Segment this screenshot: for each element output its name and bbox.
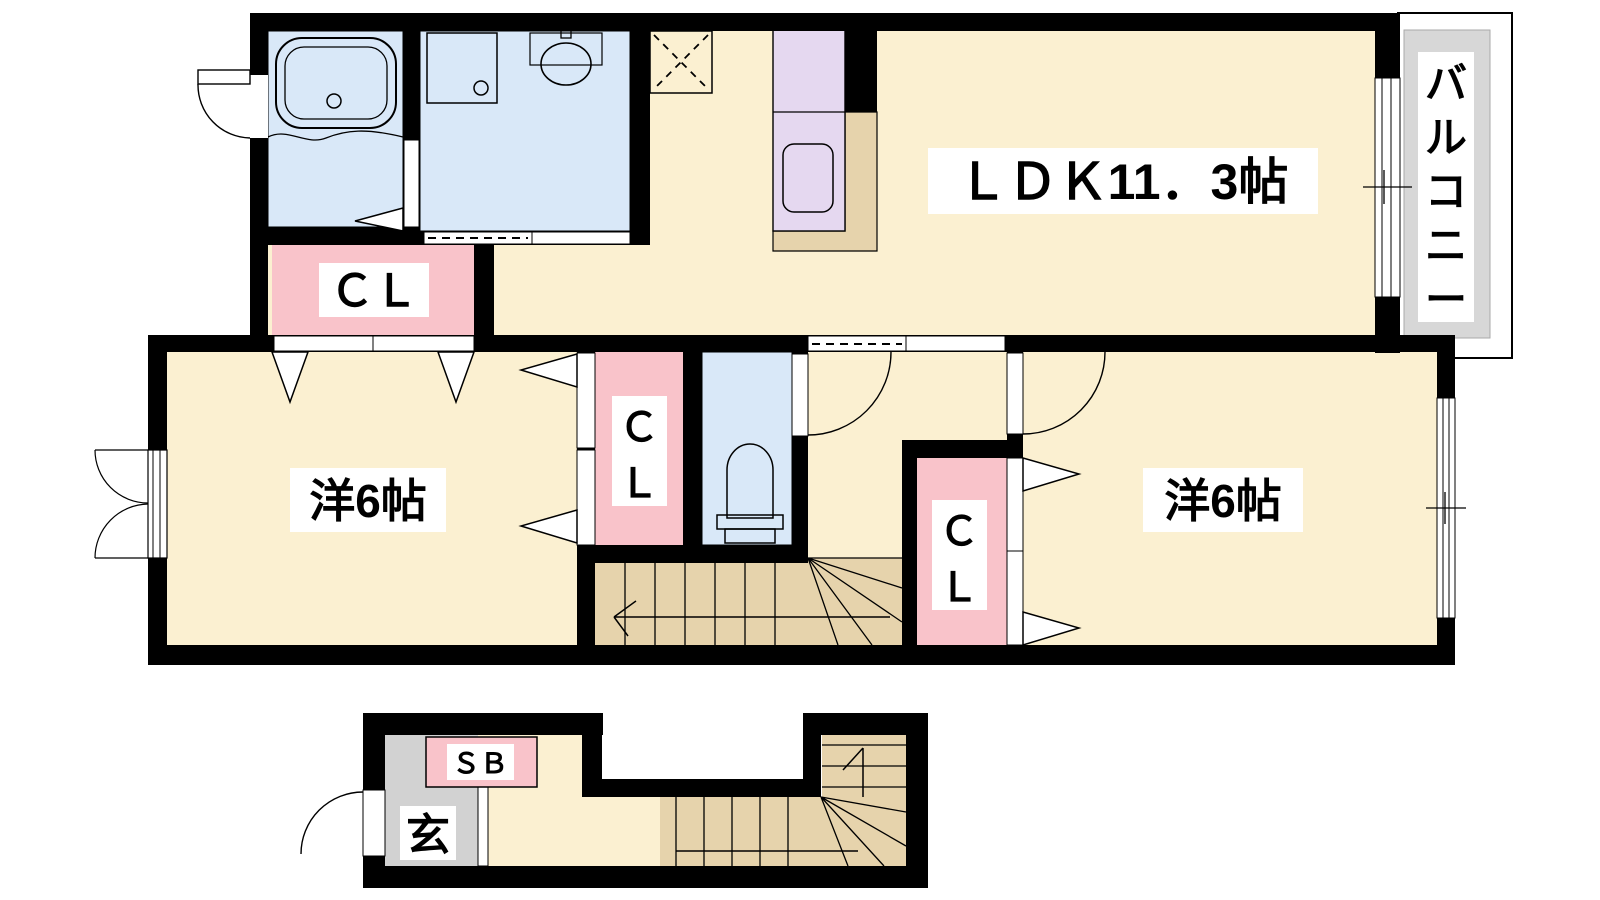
closet-middle-label-c: Ｃ — [619, 406, 659, 450]
entrance-step-divider — [478, 787, 488, 866]
wall-1f-mid — [582, 779, 821, 797]
closet-middle-label-l: Ｌ — [619, 462, 659, 506]
wall-closet-right-left — [902, 440, 917, 645]
floor-plan-page: バ ル コ ニ ー ＬＤＫ11．3帖 洋6帖 洋6帖 ＣＬ Ｃ Ｌ Ｃ Ｌ — [0, 0, 1600, 900]
bedroom-left-label: 洋6帖 — [309, 475, 427, 527]
wall-1f-top-left — [363, 713, 603, 735]
balcony-char-2: ル — [1425, 114, 1467, 161]
kitchen-counter — [773, 29, 845, 231]
bedroom-right-door — [1007, 353, 1023, 434]
stairs-1f — [660, 733, 906, 866]
floor-plan: バ ル コ ニ ー ＬＤＫ11．3帖 洋6帖 洋6帖 ＣＬ Ｃ Ｌ Ｃ Ｌ — [0, 0, 1600, 900]
entrance-door-opening — [363, 790, 385, 856]
closet-top-label: ＣＬ — [330, 267, 418, 316]
entrance-label: 玄 — [406, 811, 450, 860]
shoe-box-label: ＳＢ — [452, 748, 508, 779]
toilet-room — [702, 352, 792, 545]
toilet-door — [792, 354, 808, 436]
balcony-char-3: コ — [1425, 168, 1467, 215]
first-floor: ＳＢ 玄 — [301, 713, 928, 888]
ldk-hall-slider-right — [906, 336, 1005, 351]
closet-right-door-lower — [1007, 551, 1023, 645]
balcony-char-4: ニ — [1425, 222, 1467, 269]
wall-1f-right — [906, 713, 928, 888]
bath-door-leaf — [198, 70, 250, 84]
closet-top-opening — [274, 336, 474, 351]
closet-middle-door-upper — [577, 353, 595, 448]
washroom-slider-right — [532, 232, 630, 244]
wall-1f-bottom — [363, 866, 928, 888]
wall-stairs-top — [595, 545, 808, 563]
closet-right-label-l: Ｌ — [939, 566, 979, 610]
bath-door-arc — [198, 84, 250, 138]
second-floor: バ ル コ ニ ー ＬＤＫ11．3帖 洋6帖 洋6帖 ＣＬ Ｃ Ｌ Ｃ Ｌ — [95, 13, 1512, 665]
bath-door-opening — [250, 75, 268, 138]
closet-right-label-c: Ｃ — [939, 510, 979, 554]
ldk-label: ＬＤＫ11．3帖 — [958, 154, 1289, 210]
window-left-swing-arcs — [95, 450, 148, 558]
entrance-door-arc — [301, 792, 363, 854]
balcony-char-1: バ — [1425, 60, 1467, 107]
bedroom-right-label: 洋6帖 — [1164, 475, 1282, 527]
wall-bottom — [148, 645, 1455, 665]
wall-left-upper — [250, 13, 268, 335]
window-left-frame — [148, 450, 167, 558]
wall-top — [250, 13, 1400, 31]
wall-wash-right — [630, 13, 650, 245]
wall-closet-right-top — [902, 440, 1023, 458]
closet-middle-door-lower — [577, 450, 595, 545]
stairs-2f — [595, 558, 902, 645]
closet-right-door-upper — [1007, 458, 1023, 551]
bath-wash-door — [404, 140, 419, 227]
balcony-label: バ ル コ ニ ー — [1418, 52, 1474, 323]
washroom — [420, 31, 630, 231]
balcony-char-5: ー — [1425, 276, 1467, 323]
wall-closet-top-right — [474, 243, 494, 335]
wall-kitchen-stub — [845, 13, 877, 112]
wall-closet-toilet — [683, 352, 702, 545]
casement-window-left — [95, 450, 167, 558]
